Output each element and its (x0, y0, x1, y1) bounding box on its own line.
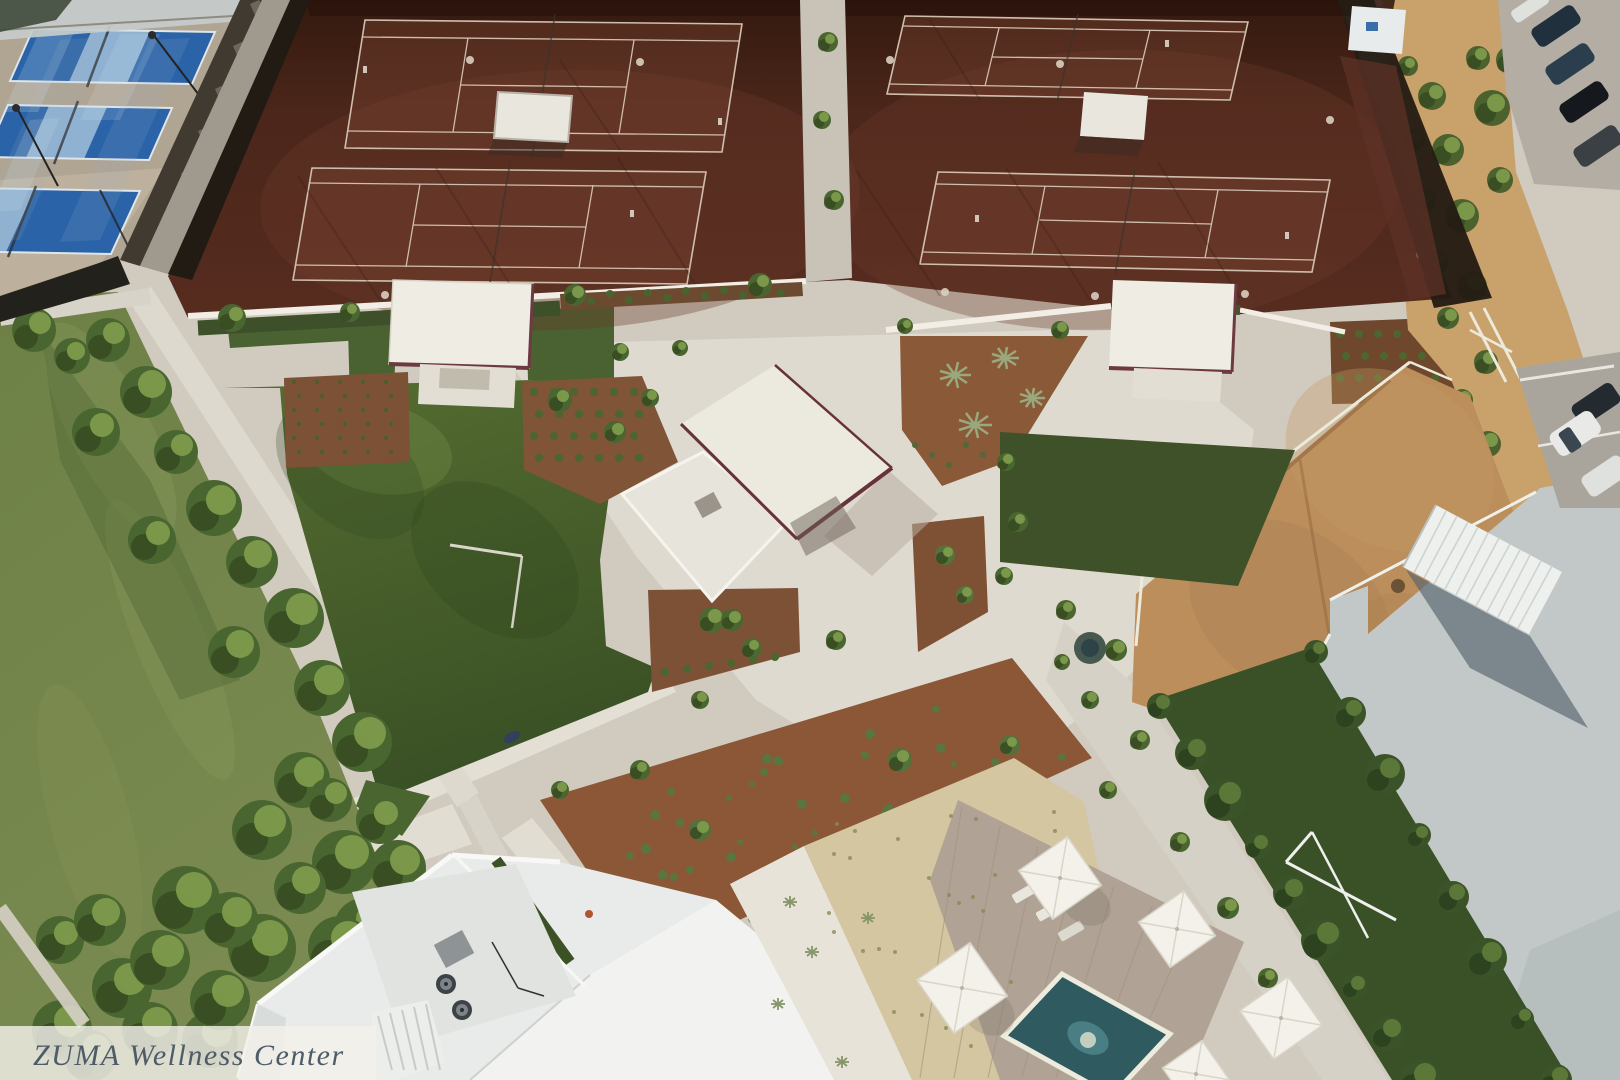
svg-text:ZUMA Wellness Center: ZUMA Wellness Center (33, 1039, 345, 1072)
